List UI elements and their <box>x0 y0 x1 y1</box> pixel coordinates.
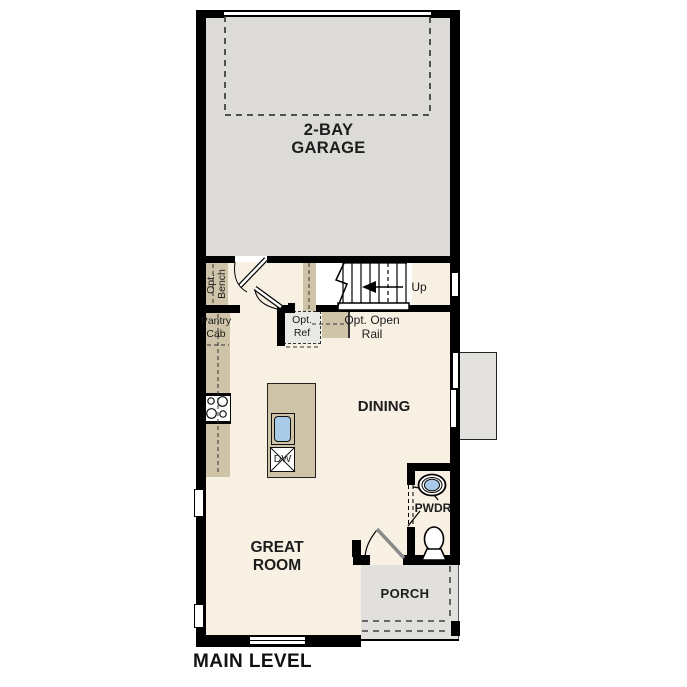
stairwell <box>316 262 412 306</box>
wall-frontdoor-corner <box>352 540 361 557</box>
wall-pantry-top <box>196 305 240 313</box>
island-sink <box>274 416 291 442</box>
wall-porch-top-right <box>403 555 460 565</box>
floorplan-canvas: 2-BAY GARAGE Up Opt. Bench Pantry Cab Op… <box>0 0 687 687</box>
window-bottom <box>249 636 306 645</box>
window-left-upper <box>194 489 204 517</box>
opt-open-rail-label: Opt. Open Rail <box>327 313 417 341</box>
wall-top-left <box>196 10 224 18</box>
opt-bench-label: Opt. Bench <box>206 262 228 306</box>
stair-divider-wall <box>303 262 316 311</box>
porch-bottom-edge <box>361 639 459 641</box>
window-stoop-lower <box>450 389 457 428</box>
wall-garage-bottom-right <box>267 256 460 263</box>
garage-door <box>224 10 431 17</box>
dining-label: DINING <box>344 398 424 415</box>
porch-label: PORCH <box>375 586 435 601</box>
main-level-title: MAIN LEVEL <box>193 651 353 673</box>
window-stoop-upper <box>452 352 459 389</box>
window-right-stair <box>451 272 459 297</box>
up-label: Up <box>404 280 434 294</box>
porch-step-block <box>451 621 460 636</box>
garage-label: 2-BAY GARAGE <box>268 121 389 157</box>
porch <box>361 565 459 641</box>
wall-pwdr-left-lower <box>407 527 415 558</box>
dishwasher-label: DW <box>270 453 295 465</box>
pantry-cab-label: Pantry Cab <box>197 315 235 341</box>
side-stoop <box>460 352 497 440</box>
pwdr-label: PWDR <box>411 501 455 515</box>
wall-pwdr-left-upper <box>407 463 415 485</box>
wall-pwdr-top <box>408 463 460 471</box>
door-hinge-block <box>288 303 295 312</box>
opt-ref-label: Opt. Ref <box>283 314 321 340</box>
wall-stair-bottom <box>316 305 460 312</box>
great-room-label: GREAT ROOM <box>227 539 327 575</box>
window-left-lower <box>194 604 204 628</box>
wall-top-right <box>431 10 460 18</box>
stove <box>205 393 231 424</box>
